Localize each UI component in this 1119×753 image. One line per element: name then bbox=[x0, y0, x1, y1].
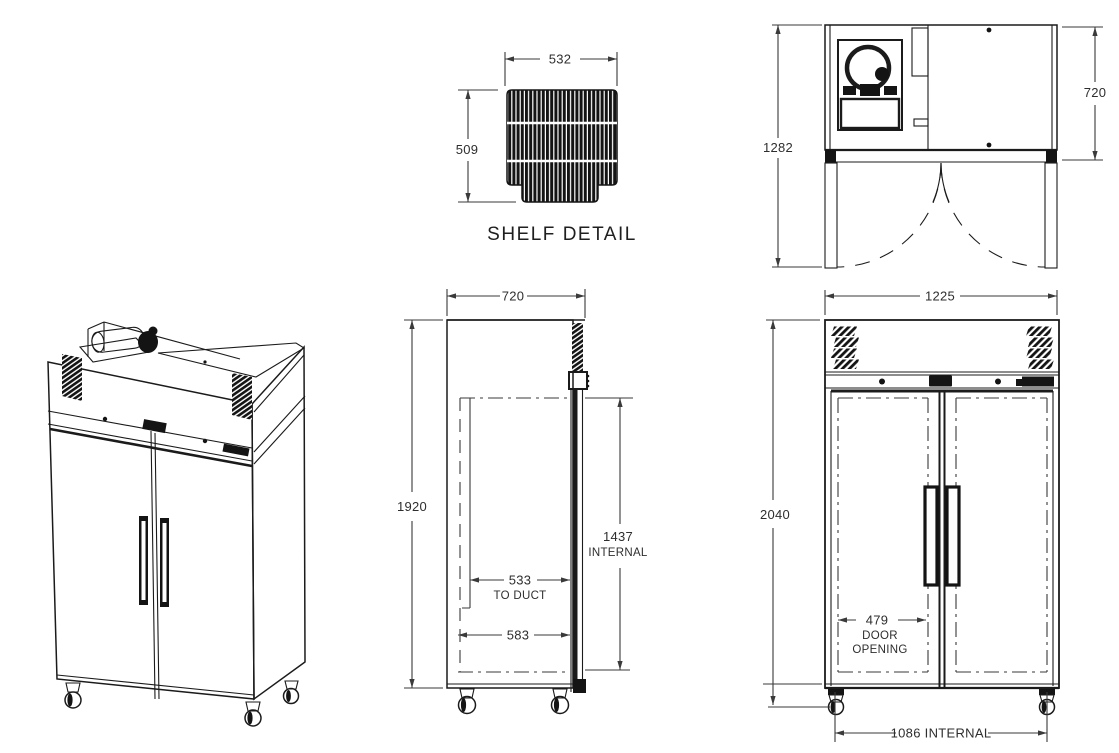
compressor-icon bbox=[91, 326, 145, 353]
front-door-divider bbox=[940, 391, 945, 688]
dim-text-front-height: 2040 bbox=[760, 507, 790, 522]
caster-icon bbox=[829, 695, 844, 715]
plan-open-door-right bbox=[1045, 163, 1057, 268]
side-view: 720 1920 1437 INTERNAL 533 TO DUCT bbox=[397, 289, 648, 714]
dim-text-internal-height: 1437 bbox=[603, 529, 633, 544]
iso-controller bbox=[142, 419, 166, 433]
caster-icon bbox=[65, 683, 81, 708]
dim-side-duct-depth: 533 TO DUCT bbox=[470, 573, 570, 603]
caster-icon bbox=[284, 681, 299, 704]
dim-side-base-depth: 583 bbox=[458, 628, 570, 643]
dim-side-internal-height: 1437 INTERNAL bbox=[585, 398, 648, 670]
dim-front-internal-width: 1086 INTERNAL bbox=[835, 692, 1047, 742]
caster-icon bbox=[552, 689, 569, 714]
iso-vent-grille-right bbox=[232, 373, 252, 420]
iso-door-divider bbox=[151, 431, 159, 699]
dim-text-side-depth: 720 bbox=[502, 289, 525, 304]
side-duct-line bbox=[462, 398, 470, 608]
side-hinge-bracket bbox=[569, 372, 587, 389]
door-swing-arc-left bbox=[837, 163, 941, 267]
dim-text-plan-overall-depth: 1282 bbox=[763, 140, 793, 155]
dim-text-duct-depth: 533 bbox=[509, 573, 532, 588]
side-hinge-pillar bbox=[572, 323, 583, 372]
wire-shelf bbox=[507, 90, 617, 202]
caster-icon bbox=[459, 689, 476, 714]
refrigeration-spec-drawing: 532 509 SHELF DETAIL bbox=[0, 0, 1119, 753]
dim-label-duct-depth: TO DUCT bbox=[494, 590, 547, 602]
front-view: 1225 2040 479 DOOR OPENING 1086 INTERNAL bbox=[760, 289, 1059, 743]
dim-text-shelf-width: 532 bbox=[549, 52, 572, 67]
iso-side-face bbox=[252, 347, 305, 699]
dim-label-door-opening-1: DOOR bbox=[862, 630, 898, 642]
dim-shelf-width: 532 bbox=[505, 52, 617, 87]
dim-side-depth: 720 bbox=[447, 289, 585, 319]
dim-front-width: 1225 bbox=[825, 289, 1057, 316]
front-vent-grille-left bbox=[831, 327, 859, 370]
dim-text-plan-body-depth: 720 bbox=[1084, 85, 1107, 100]
dim-text-side-height: 1920 bbox=[397, 499, 427, 514]
front-door-handle-left bbox=[925, 487, 937, 585]
screw-icon bbox=[103, 417, 107, 421]
screw-icon bbox=[879, 379, 885, 385]
dim-text-base-depth: 583 bbox=[507, 628, 530, 643]
shelf-detail-title: SHELF DETAIL bbox=[487, 224, 637, 245]
technical-drawing-sheet: 532 509 SHELF DETAIL bbox=[0, 0, 1119, 753]
shelf-detail-view: 532 509 SHELF DETAIL bbox=[456, 52, 637, 246]
dim-plan-overall-depth: 1282 bbox=[763, 25, 822, 267]
isometric-view bbox=[48, 322, 305, 726]
front-door-handle-right bbox=[947, 487, 959, 585]
caster-icon bbox=[245, 702, 261, 726]
dim-side-height: 1920 bbox=[397, 320, 443, 688]
front-brand-badge bbox=[1022, 377, 1054, 387]
dim-text-shelf-depth: 509 bbox=[456, 142, 479, 157]
plan-compressor-unit bbox=[838, 40, 902, 130]
dim-label-door-opening-2: OPENING bbox=[852, 644, 907, 656]
dim-text-front-internal-width: 1086 INTERNAL bbox=[891, 726, 992, 741]
dim-text-door-opening: 479 bbox=[866, 613, 889, 628]
front-door-right-liner bbox=[956, 398, 1047, 672]
drain-tray bbox=[841, 99, 899, 128]
iso-back-rail bbox=[88, 322, 240, 359]
dim-plan-body-depth: 720 bbox=[1062, 27, 1106, 160]
front-vent-grille-right bbox=[1026, 327, 1054, 370]
iso-vent-grille-left bbox=[62, 354, 82, 401]
dim-front-height: 2040 bbox=[760, 320, 830, 707]
screw-icon bbox=[995, 379, 1001, 385]
dim-door-opening: 479 DOOR OPENING bbox=[838, 613, 926, 657]
door-swing-arc-right bbox=[941, 163, 1045, 267]
plan-open-door-left bbox=[825, 163, 837, 268]
front-controller bbox=[929, 376, 952, 387]
plan-view: 1282 720 bbox=[763, 25, 1106, 268]
screw-icon bbox=[203, 439, 207, 443]
iso-front-face bbox=[48, 362, 254, 699]
dim-label-internal-height: INTERNAL bbox=[588, 547, 648, 559]
side-door-foot bbox=[573, 679, 586, 693]
dim-text-front-width: 1225 bbox=[925, 289, 955, 304]
